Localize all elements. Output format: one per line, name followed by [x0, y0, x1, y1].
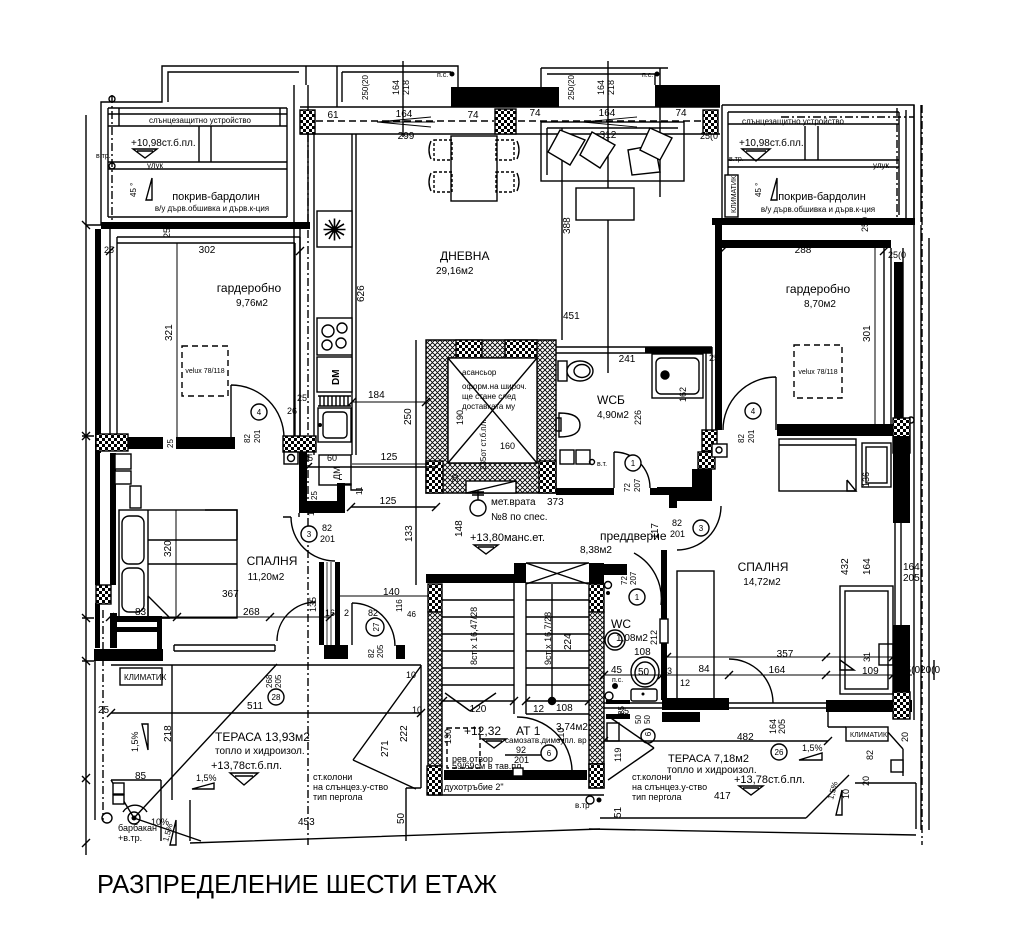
svg-text:85: 85 — [135, 771, 147, 782]
svg-text:4: 4 — [257, 408, 262, 417]
svg-text:улук: улук — [873, 161, 889, 170]
svg-text:улук: улук — [147, 161, 163, 170]
svg-text:ще стане след: ще стане след — [462, 392, 516, 401]
svg-text:117: 117 — [650, 523, 661, 539]
svg-text:1,5%: 1,5% — [130, 731, 140, 752]
svg-text:218: 218 — [401, 80, 411, 95]
svg-text:250: 250 — [162, 223, 172, 238]
svg-text:61: 61 — [327, 110, 339, 121]
svg-text:в.т.: в.т. — [597, 461, 607, 468]
svg-text:в.тр: в.тр — [575, 801, 590, 810]
svg-text:190: 190 — [455, 410, 465, 425]
svg-text:velux 78/118: velux 78/118 — [185, 368, 224, 375]
svg-text:6: 6 — [547, 749, 552, 758]
svg-text:136: 136 — [861, 472, 871, 487]
svg-text:25: 25 — [98, 705, 110, 716]
svg-text:235от ст.б.пл.: 235от ст.б.пл. — [479, 419, 488, 470]
svg-text:духотръбие 2": духотръбие 2" — [444, 782, 504, 792]
svg-text:116: 116 — [395, 599, 404, 612]
svg-text:топло и хидроизол.: топло и хидроизол. — [215, 746, 305, 757]
svg-text:164: 164 — [903, 562, 920, 573]
svg-text:3: 3 — [699, 524, 704, 533]
svg-text:164: 164 — [599, 108, 616, 119]
svg-text:148: 148 — [454, 520, 465, 537]
svg-text:тип пергола: тип пергола — [632, 792, 682, 802]
svg-text:ст.колони: ст.колони — [632, 772, 671, 782]
svg-text:в.тр.: в.тр. — [96, 153, 111, 160]
svg-text:доставката му: доставката му — [462, 402, 515, 411]
svg-text:301: 301 — [862, 325, 873, 342]
svg-text:51: 51 — [613, 806, 624, 818]
svg-text:тип пергола: тип пергола — [313, 792, 363, 802]
svg-text:250: 250 — [403, 408, 414, 425]
svg-text:12: 12 — [533, 704, 545, 715]
svg-text:покрив-бардолин: покрив-бардолин — [778, 191, 866, 203]
svg-text:3: 3 — [307, 530, 312, 539]
svg-text:72: 72 — [623, 483, 632, 492]
svg-text:8,70м2: 8,70м2 — [804, 299, 836, 310]
svg-text:133: 133 — [404, 525, 415, 542]
svg-text:82: 82 — [737, 434, 746, 443]
svg-text:388: 388 — [562, 217, 573, 234]
svg-text:26: 26 — [775, 748, 784, 757]
svg-text:82: 82 — [672, 518, 682, 528]
svg-text:п.с.: п.с. — [612, 677, 623, 684]
svg-text:357: 357 — [777, 649, 794, 660]
svg-text:373: 373 — [547, 497, 564, 508]
svg-text:самозатв.димоупл. вр: самозатв.димоупл. вр — [505, 736, 587, 745]
svg-text:ДНЕВНА: ДНЕВНА — [440, 249, 489, 263]
svg-text:74: 74 — [675, 108, 687, 119]
svg-text:125: 125 — [380, 496, 397, 507]
svg-text:+12,32: +12,32 — [464, 724, 501, 738]
svg-text:12: 12 — [680, 678, 690, 688]
svg-text:+10,98ст.б.пл.: +10,98ст.б.пл. — [739, 137, 804, 149]
svg-text:130: 130 — [443, 729, 453, 744]
svg-text:20: 20 — [451, 474, 460, 483]
svg-text:108: 108 — [556, 703, 573, 714]
svg-text:201: 201 — [747, 429, 756, 443]
svg-text:162: 162 — [678, 387, 688, 402]
svg-text:224: 224 — [563, 633, 574, 650]
svg-text:250(20: 250(20 — [567, 75, 576, 100]
svg-text:асансьор: асансьор — [462, 368, 497, 377]
svg-text:164: 164 — [391, 80, 401, 95]
svg-text:п.с.: п.с. — [642, 72, 653, 79]
svg-text:в/у дърв.обшивка и дърв.к-ция: в/у дърв.обшивка и дърв.к-ция — [761, 205, 875, 214]
svg-text:9,76м2: 9,76м2 — [236, 298, 268, 309]
svg-text:DM: DM — [331, 369, 342, 385]
svg-text:КЛИМАТИК: КЛИМАТИК — [124, 673, 167, 682]
svg-text:+10,98ст.б.пл.: +10,98ст.б.пл. — [131, 137, 196, 149]
svg-text:120: 120 — [470, 704, 487, 715]
svg-text:ст.колони: ст.колони — [313, 772, 352, 782]
svg-text:25: 25 — [104, 245, 114, 255]
svg-text:218: 218 — [163, 725, 174, 742]
svg-text:60: 60 — [327, 453, 337, 463]
svg-text:321: 321 — [164, 324, 175, 341]
svg-text:28: 28 — [272, 693, 281, 702]
svg-text:212: 212 — [649, 630, 659, 645]
svg-text:+в.тр.: +в.тр. — [118, 833, 142, 843]
svg-text:20: 20 — [900, 732, 910, 742]
svg-text:453: 453 — [298, 817, 315, 828]
svg-text:гардеробно: гардеробно — [217, 281, 282, 295]
svg-text:8ст х 16,47/28: 8ст х 16,47/28 — [469, 607, 479, 665]
svg-text:451: 451 — [563, 311, 580, 322]
svg-text:50: 50 — [643, 715, 652, 724]
svg-text:82: 82 — [367, 649, 376, 658]
svg-text:1: 1 — [631, 459, 636, 468]
svg-text:КЛИМАТИК: КЛИМАТИК — [731, 175, 738, 213]
svg-text:1,5%: 1,5% — [196, 773, 217, 783]
svg-text:320: 320 — [163, 540, 174, 557]
svg-text:ТЕРАСА 7,18м2: ТЕРАСА 7,18м2 — [668, 753, 749, 765]
svg-text:6: 6 — [644, 731, 653, 736]
svg-text:218: 218 — [606, 80, 616, 95]
svg-text:50: 50 — [396, 812, 407, 824]
svg-text:1,5%: 1,5% — [802, 743, 823, 753]
svg-text:250(20: 250(20 — [361, 75, 370, 100]
svg-text:25: 25 — [862, 426, 872, 436]
svg-text:19: 19 — [307, 507, 316, 516]
svg-text:164: 164 — [396, 109, 413, 120]
svg-text:207: 207 — [629, 571, 638, 585]
svg-text:25(0: 25(0 — [700, 131, 718, 141]
svg-text:2: 2 — [344, 608, 349, 618]
svg-text:на слънцез.у-ство: на слънцез.у-ство — [313, 782, 388, 792]
svg-text:82: 82 — [865, 750, 875, 760]
svg-text:29,16м2: 29,16м2 — [436, 266, 474, 277]
svg-text:250: 250 — [860, 217, 870, 232]
svg-text:25: 25 — [863, 702, 873, 712]
svg-text:14,72м2: 14,72м2 — [743, 577, 781, 588]
svg-text:74: 74 — [467, 110, 479, 121]
svg-text:мет.врата: мет.врата — [491, 497, 536, 508]
svg-text:164: 164 — [769, 665, 786, 676]
svg-text:50: 50 — [634, 715, 643, 724]
svg-text:511: 511 — [247, 701, 263, 712]
svg-text:25: 25 — [310, 491, 319, 500]
svg-text:8,38м2: 8,38м2 — [580, 545, 612, 556]
svg-text:слънцезащитно устройство: слънцезащитно устройство — [742, 117, 845, 126]
svg-text:119: 119 — [613, 748, 623, 762]
svg-text:125: 125 — [381, 452, 398, 463]
svg-text:№8 по спес.: №8 по спес. — [491, 512, 548, 523]
svg-text:164: 164 — [862, 558, 873, 575]
svg-text:164: 164 — [596, 80, 606, 95]
svg-text:25: 25 — [166, 439, 175, 448]
svg-text:205: 205 — [777, 719, 787, 734]
svg-text:27: 27 — [372, 622, 381, 631]
svg-text:СПАЛНЯ: СПАЛНЯ — [247, 554, 298, 568]
svg-text:11,20м2: 11,20м2 — [248, 572, 285, 583]
svg-text:417: 417 — [714, 791, 731, 802]
svg-text:135: 135 — [308, 597, 318, 612]
svg-text:на слънцез.у-ство: на слънцез.у-ство — [632, 782, 707, 792]
svg-text:82: 82 — [322, 523, 332, 533]
svg-text:oформ.на широч.: oформ.на широч. — [462, 382, 527, 391]
svg-text:82: 82 — [243, 434, 252, 443]
svg-text:72: 72 — [620, 576, 629, 585]
svg-text:367: 367 — [222, 589, 239, 600]
svg-text:50: 50 — [638, 667, 650, 678]
svg-text:4,90м2: 4,90м2 — [597, 410, 629, 421]
svg-text:п.с.: п.с. — [437, 72, 448, 79]
svg-text:482: 482 — [737, 732, 754, 743]
svg-text:10: 10 — [406, 670, 416, 680]
svg-text:WC: WC — [611, 617, 631, 631]
svg-text:ДМ: ДМ — [332, 466, 342, 480]
svg-text:КЛИМАТИК: КЛИМАТИК — [850, 732, 888, 739]
svg-text:барбакан: барбакан — [118, 823, 157, 833]
svg-text:201: 201 — [670, 529, 685, 539]
svg-text:271: 271 — [380, 740, 391, 757]
svg-text:299: 299 — [398, 131, 415, 142]
svg-text:+13,78ст.б.пл.: +13,78ст.б.пл. — [734, 774, 805, 786]
svg-text:226: 226 — [633, 410, 643, 425]
svg-text:+13,78ст.б.пл.: +13,78ст.б.пл. — [211, 760, 282, 772]
svg-text:покрив-бардолин: покрив-бардолин — [172, 191, 260, 203]
svg-text:59/69см в тав.пл: 59/69см в тав.пл — [452, 761, 521, 771]
svg-text:201: 201 — [253, 429, 262, 443]
svg-text:241: 241 — [619, 354, 636, 365]
svg-text:74: 74 — [529, 108, 541, 119]
svg-text:110: 110 — [556, 728, 566, 742]
svg-text:205: 205 — [903, 573, 920, 584]
svg-text:184: 184 — [368, 390, 385, 401]
svg-text:слънцезащитно устройство: слънцезащитно устройство — [149, 116, 252, 125]
svg-text:+13,80манс.ет.: +13,80манс.ет. — [470, 532, 545, 544]
svg-text:в/у дърв.обшивка и дърв.к-ция: в/у дърв.обшивка и дърв.к-ция — [155, 204, 269, 213]
svg-text:160: 160 — [500, 441, 515, 451]
svg-text:268: 268 — [243, 607, 260, 618]
svg-text:82: 82 — [368, 608, 378, 618]
svg-text:1: 1 — [635, 593, 640, 602]
svg-text:гардеробно: гардеробно — [786, 282, 851, 296]
svg-text:25: 25 — [297, 393, 307, 403]
svg-text:46: 46 — [407, 610, 416, 619]
svg-text:222: 222 — [399, 725, 410, 742]
svg-text:205: 205 — [376, 644, 385, 658]
svg-text:205: 205 — [274, 674, 283, 688]
svg-text:302: 302 — [199, 245, 216, 256]
svg-text:84: 84 — [698, 664, 710, 675]
svg-text:9ст х 16,7/28: 9ст х 16,7/28 — [543, 612, 553, 665]
svg-text:СПАЛНЯ: СПАЛНЯ — [738, 560, 789, 574]
svg-text:45 °: 45 ° — [754, 183, 763, 197]
svg-text:626: 626 — [356, 285, 367, 302]
svg-text:288: 288 — [795, 245, 812, 256]
svg-text:11: 11 — [355, 486, 364, 495]
svg-text:20: 20 — [861, 776, 871, 786]
svg-text:4: 4 — [751, 407, 756, 416]
svg-text:45: 45 — [611, 665, 623, 676]
svg-text:432: 432 — [840, 558, 851, 575]
svg-text:25: 25 — [619, 706, 629, 716]
svg-text:WCБ: WCБ — [597, 393, 625, 407]
svg-text:207: 207 — [633, 478, 642, 492]
svg-text:в.тр.: в.тр. — [729, 156, 744, 163]
svg-text:РАЗПРЕДЕЛЕНИЕ ШЕСТИ ЕТАЖ: РАЗПРЕДЕЛЕНИЕ ШЕСТИ ЕТАЖ — [97, 869, 497, 899]
svg-text:201: 201 — [320, 534, 335, 544]
svg-text:31: 31 — [862, 652, 872, 662]
svg-text:45 °: 45 ° — [129, 183, 138, 197]
svg-text:ТЕРАСА 13,93м2: ТЕРАСА 13,93м2 — [215, 730, 310, 744]
svg-text:velux 78/118: velux 78/118 — [798, 369, 837, 376]
svg-text:108: 108 — [634, 647, 651, 658]
svg-text:92: 92 — [516, 745, 526, 755]
